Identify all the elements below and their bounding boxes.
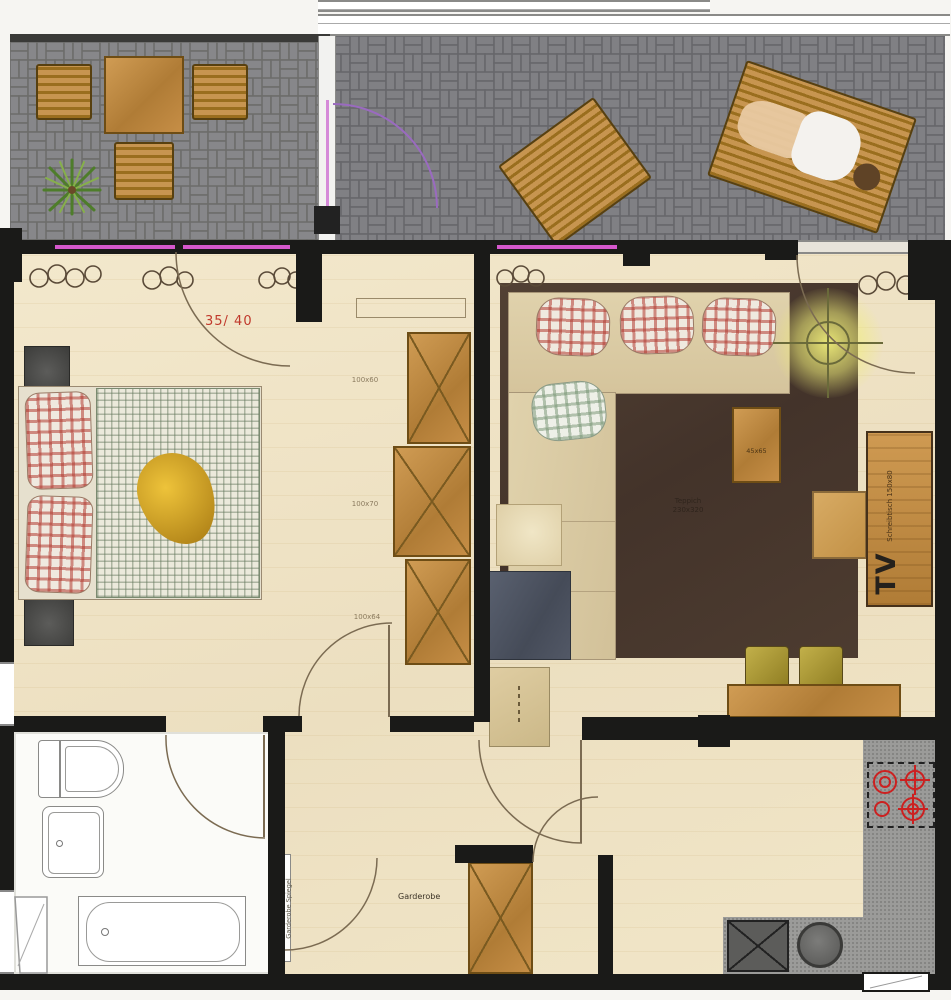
window-left-1 [0, 662, 14, 726]
window-glazing-living [497, 245, 617, 249]
mirror-door-arc [285, 858, 377, 950]
cabinet-marks [518, 682, 520, 722]
door-glazing-bedroom-balcony [183, 245, 290, 249]
dining-chair-1 [745, 646, 789, 688]
side-table-label: 45x65 [734, 447, 779, 455]
window-kitchen-line [864, 974, 928, 990]
shower-corner [14, 896, 48, 974]
window-left-2 [0, 890, 14, 974]
terrace-chair-bottom [114, 142, 174, 200]
toilet [38, 740, 124, 798]
hall-wardrobe [468, 862, 533, 974]
wardrobe-1-label: 100x60 [336, 376, 394, 384]
wall-left [0, 240, 14, 990]
bathtub [78, 896, 246, 966]
nightstand-bottom [24, 596, 74, 646]
wardrobe-1 [407, 332, 471, 444]
pouf [496, 504, 562, 566]
wall-hall-living [582, 717, 698, 740]
hall-wardrobe-label: Garderobe [398, 892, 462, 901]
desk-dim: 150x80 [886, 470, 894, 496]
sofa-cushion-red-3 [701, 297, 777, 358]
terrace-door-swing-arc [333, 104, 439, 210]
wall-pier [0, 228, 22, 282]
wall-bathroom-top [14, 716, 166, 732]
rug-name: Teppich [648, 497, 728, 506]
bed-pillow-1 [24, 391, 93, 490]
toilet-bowl [65, 746, 119, 792]
person-head [850, 160, 884, 194]
wall-bathroom-hall [268, 732, 285, 975]
terrace-chair-right [192, 64, 248, 120]
wall-right [935, 240, 951, 990]
floor-plan-canvas: Teppich 230x320 45x65 Schreibtisch 150x8… [0, 0, 951, 1000]
bathroom-door-arc [166, 735, 265, 838]
sofa-cushion-red-1 [535, 297, 611, 358]
curtain-icon [494, 262, 548, 294]
cooktop [867, 762, 935, 828]
wall-pier [765, 240, 798, 260]
curtain-icon [26, 262, 108, 294]
wall-pier [296, 240, 322, 322]
chest-dark [488, 571, 571, 660]
wardrobe-2-label: 100x70 [336, 500, 394, 508]
rug-label: Teppich 230x320 [648, 497, 728, 515]
sink-drain [56, 840, 63, 847]
wall-dining-stub [698, 715, 730, 747]
balcony-railing-upper [318, 0, 710, 12]
bed-pillow-2 [24, 495, 93, 594]
hall-kitchen-door-arc [533, 797, 598, 862]
bathroom-sink [42, 806, 104, 878]
wall-bottom [10, 974, 951, 990]
dining-chair-2 [799, 646, 843, 688]
terrace-door-frame [314, 206, 340, 234]
cooktop-burners-icon [869, 764, 933, 826]
terrace-door-glazing [326, 100, 329, 206]
terrace-railing-left-top [10, 34, 330, 42]
wall-bedroom-bottom-right [390, 716, 474, 732]
bathtub-inner [86, 902, 240, 962]
sofa-cushion-green [529, 378, 609, 443]
toilet-tank-line [59, 741, 61, 797]
dining-table [727, 684, 901, 718]
wall-bedroom-living [474, 252, 490, 722]
wardrobe-shelf [356, 298, 466, 318]
terrace-table [104, 56, 184, 134]
living-balcony-door-opening [798, 240, 910, 254]
bedroom-hall-door-arc [299, 623, 392, 716]
wood-square-table [812, 491, 867, 559]
wall-hall-stub [455, 845, 533, 863]
wardrobe-3-label: 100x64 [338, 613, 396, 621]
wardrobe-2 [393, 446, 471, 557]
wall-dining-kitchen [698, 717, 935, 740]
hall-cabinet [489, 667, 550, 747]
tv-label: TV [871, 533, 905, 613]
wardrobe-3 [405, 559, 471, 665]
balcony-railing-top [318, 14, 950, 36]
bathtub-drain [101, 928, 109, 936]
plant-icon [40, 156, 104, 218]
kitchen-sink-round [797, 922, 843, 968]
wall-pier [623, 240, 650, 266]
bedroom-balcony-door-arc [176, 252, 290, 366]
terrace-chair-left [36, 64, 92, 120]
wall-hall-kitchen [598, 855, 613, 975]
rug-dim: 230x320 [648, 506, 728, 515]
side-table: 45x65 [732, 407, 781, 483]
wall-bedroom-bottom-mid [263, 716, 302, 732]
window-glazing-bedroom [55, 245, 175, 249]
window-kitchen [862, 972, 930, 992]
living-balcony-door-arc [797, 255, 915, 373]
kitchen-cabinet-x [727, 920, 789, 972]
sofa-cushion-red-2 [619, 295, 695, 356]
